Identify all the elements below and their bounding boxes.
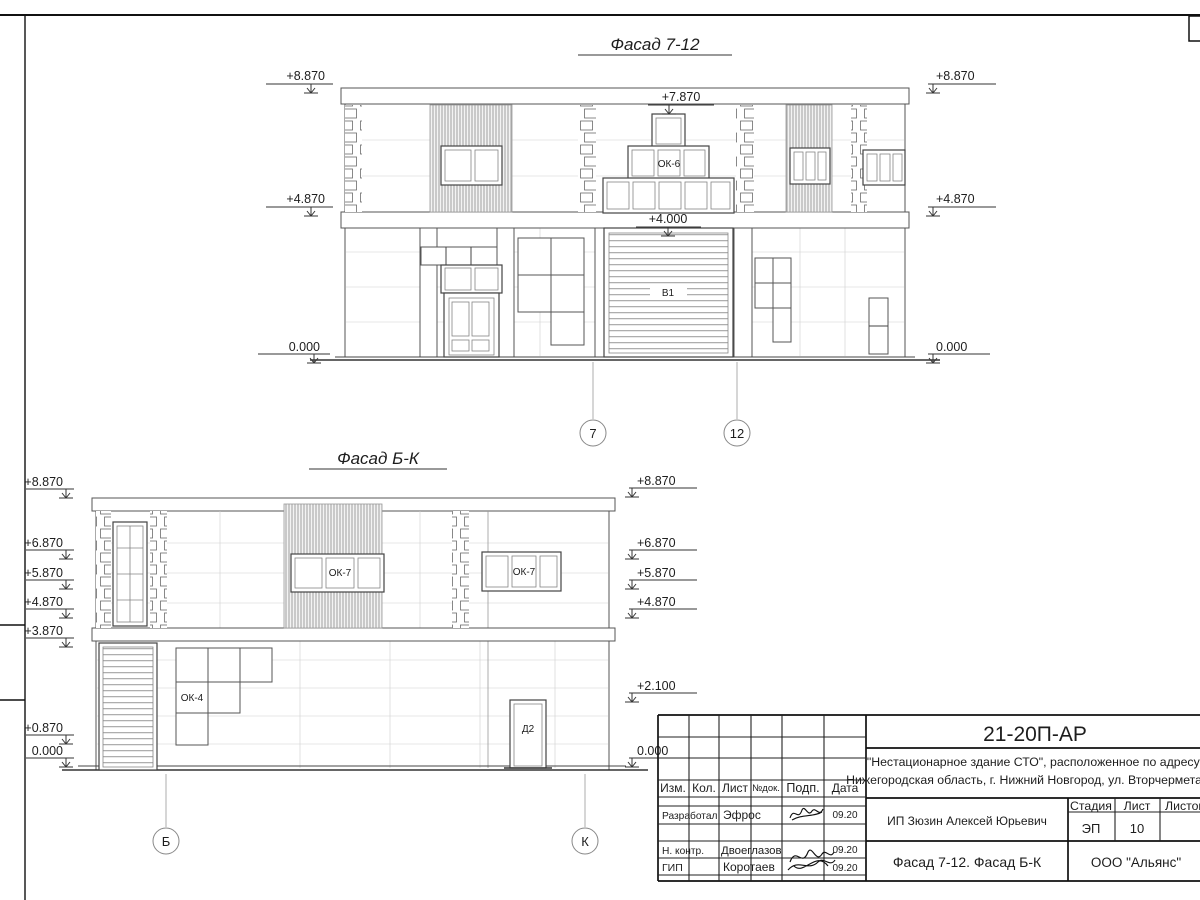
window-ok7-label: ОК-7 — [329, 568, 352, 579]
elevation-mark: +4.870 — [625, 595, 697, 618]
project-name-line2: Нижегородская область, г. Нижний Новгоро… — [846, 773, 1200, 787]
svg-text:+7.870: +7.870 — [662, 90, 701, 104]
door-far-right — [869, 298, 888, 354]
svg-text:+4.870: +4.870 — [637, 595, 676, 609]
col-kol: Кол. — [692, 781, 716, 795]
elevation-mark: +8.870 — [625, 474, 697, 497]
quoin-chain — [150, 511, 167, 628]
svg-text:+6.870: +6.870 — [637, 536, 676, 550]
quoin-chain — [578, 105, 596, 212]
window-upper-left — [441, 146, 502, 185]
facade-b-k-title: Фасад Б-К — [337, 449, 420, 468]
stage-label: Стадия — [1070, 799, 1112, 813]
frame-corner-box — [1189, 16, 1200, 41]
door-d2-label: Д2 — [522, 724, 535, 735]
elevation-mark: +0.870 — [24, 721, 74, 744]
title-block: 21-20П-АР "Нестационарное здание СТО", р… — [658, 715, 1200, 881]
elevation-mark: +3.870 — [24, 624, 74, 647]
col-izm: Изм. — [660, 781, 686, 795]
window-ok7-label: ОК-7 — [513, 567, 536, 578]
stage-value: ЭП — [1082, 821, 1101, 836]
sheets-label: Листов — [1165, 799, 1200, 813]
window-ok6-label: ОК-6 — [658, 159, 681, 170]
row-role: Разработал — [662, 810, 718, 822]
svg-text:+8.870: +8.870 — [637, 474, 676, 488]
col-list: Лист — [722, 781, 749, 795]
quoin-chain — [345, 105, 362, 212]
facade-b-k: Фасад Б-К — [24, 449, 697, 854]
elevation-mark: +5.870 — [24, 566, 74, 589]
window-ok7-right: ОК-7 — [482, 552, 561, 591]
drawing-sheet: Фасад 7-12 — [0, 0, 1200, 900]
elevation-marks-right: +8.870 +4.870 0.000 — [926, 69, 996, 363]
svg-text:+8.870: +8.870 — [936, 69, 975, 83]
svg-text:0.000: 0.000 — [289, 340, 320, 354]
axis-bubbles: 7 12 — [580, 362, 750, 446]
svg-text:+2.100: +2.100 — [637, 679, 676, 693]
sheet-label: Лист — [1124, 799, 1151, 813]
elevation-mark: +6.870 — [625, 536, 697, 559]
svg-text:+4.870: +4.870 — [936, 192, 975, 206]
rollup-gate — [99, 643, 157, 770]
col-data: Дата — [832, 781, 859, 795]
elevation-mark: 0.000 — [26, 744, 74, 767]
elevation-mark: +8.870 — [24, 475, 74, 498]
sheet-number: 10 — [1130, 821, 1144, 836]
window-upper-right-2 — [863, 150, 905, 185]
door-d2: Д2 — [504, 700, 552, 768]
elevation-marks-left: +8.870 +4.870 0.000 — [258, 69, 333, 363]
elevation-mark: 0.000 — [926, 340, 990, 363]
client-name: ИП Зюзин Алексей Юрьевич — [887, 814, 1047, 828]
svg-text:+0.870: +0.870 — [24, 721, 63, 735]
svg-text:+5.870: +5.870 — [637, 566, 676, 580]
elevation-mark: +4.870 — [926, 192, 996, 216]
signature — [788, 850, 835, 870]
window-upper-right-1 — [790, 148, 830, 184]
svg-text:+4.000: +4.000 — [649, 212, 688, 226]
window-tall-left — [113, 522, 147, 626]
elevation-mark: +8.870 — [266, 69, 333, 93]
elevation-mark: +6.870 — [24, 536, 74, 559]
sheet-title: Фасад 7-12. Фасад Б-К — [893, 854, 1042, 870]
row-date: 09.20 — [832, 863, 857, 874]
svg-text:0.000: 0.000 — [32, 744, 63, 758]
col-ndok: №док. — [752, 783, 780, 794]
gate-v1-label: В1 — [662, 288, 675, 299]
svg-text:+8.870: +8.870 — [286, 69, 325, 83]
window-ok7-left: ОК-7 — [291, 554, 384, 592]
gate-v1: В1 — [604, 228, 733, 357]
svg-text:0.000: 0.000 — [637, 744, 668, 758]
axis-bubble-label: Б — [162, 834, 171, 849]
svg-text:+4.870: +4.870 — [24, 595, 63, 609]
axis-bubble-label: К — [581, 834, 589, 849]
row-role: Н. контр. — [662, 846, 704, 857]
row-name: Коротаев — [723, 860, 775, 874]
elevation-marks-left: +8.870 +6.870 +5.870 +4.870 +3.870 +0.87… — [24, 475, 74, 767]
svg-text:+3.870: +3.870 — [24, 624, 63, 638]
svg-text:+6.870: +6.870 — [24, 536, 63, 550]
row-date: 09.20 — [832, 810, 857, 821]
quoin-chain — [736, 105, 754, 212]
axis-bubble-label: 12 — [730, 426, 744, 441]
svg-text:+8.870: +8.870 — [24, 475, 63, 489]
elevation-marks-right: +8.870 +6.870 +5.870 +4.870 +2.100 0.000 — [625, 474, 697, 767]
elevation-mark: +8.870 — [926, 69, 996, 93]
axis-bubble-label: 7 — [589, 426, 596, 441]
quoin-chain — [452, 511, 469, 628]
col-podp: Подп. — [786, 781, 819, 795]
row-name: Двоеглазов — [721, 845, 782, 857]
svg-text:0.000: 0.000 — [936, 340, 967, 354]
axis-bubbles: Б К — [153, 774, 598, 854]
svg-text:+5.870: +5.870 — [24, 566, 63, 580]
row-role: ГИП — [662, 862, 683, 874]
window-ok4-label: ОК-4 — [181, 693, 204, 704]
quoin-chain — [96, 511, 111, 628]
facade-7-12-title: Фасад 7-12 — [610, 35, 700, 54]
organization-name: ООО "Альянс" — [1091, 855, 1181, 870]
signature — [790, 808, 823, 820]
document-number: 21-20П-АР — [983, 723, 1087, 746]
elevation-mark: +4.870 — [24, 595, 74, 618]
row-name: Эфрос — [723, 808, 761, 822]
elevation-mark: +2.100 — [625, 679, 697, 702]
svg-text:+4.870: +4.870 — [286, 192, 325, 206]
elevation-mark: +4.870 — [266, 192, 333, 216]
elevation-mark: +5.870 — [625, 566, 697, 589]
project-name-line1: "Нестационарное здание СТО", расположенн… — [867, 755, 1200, 769]
row-date: 09.20 — [832, 845, 857, 856]
facade-7-12: Фасад 7-12 — [258, 35, 996, 446]
